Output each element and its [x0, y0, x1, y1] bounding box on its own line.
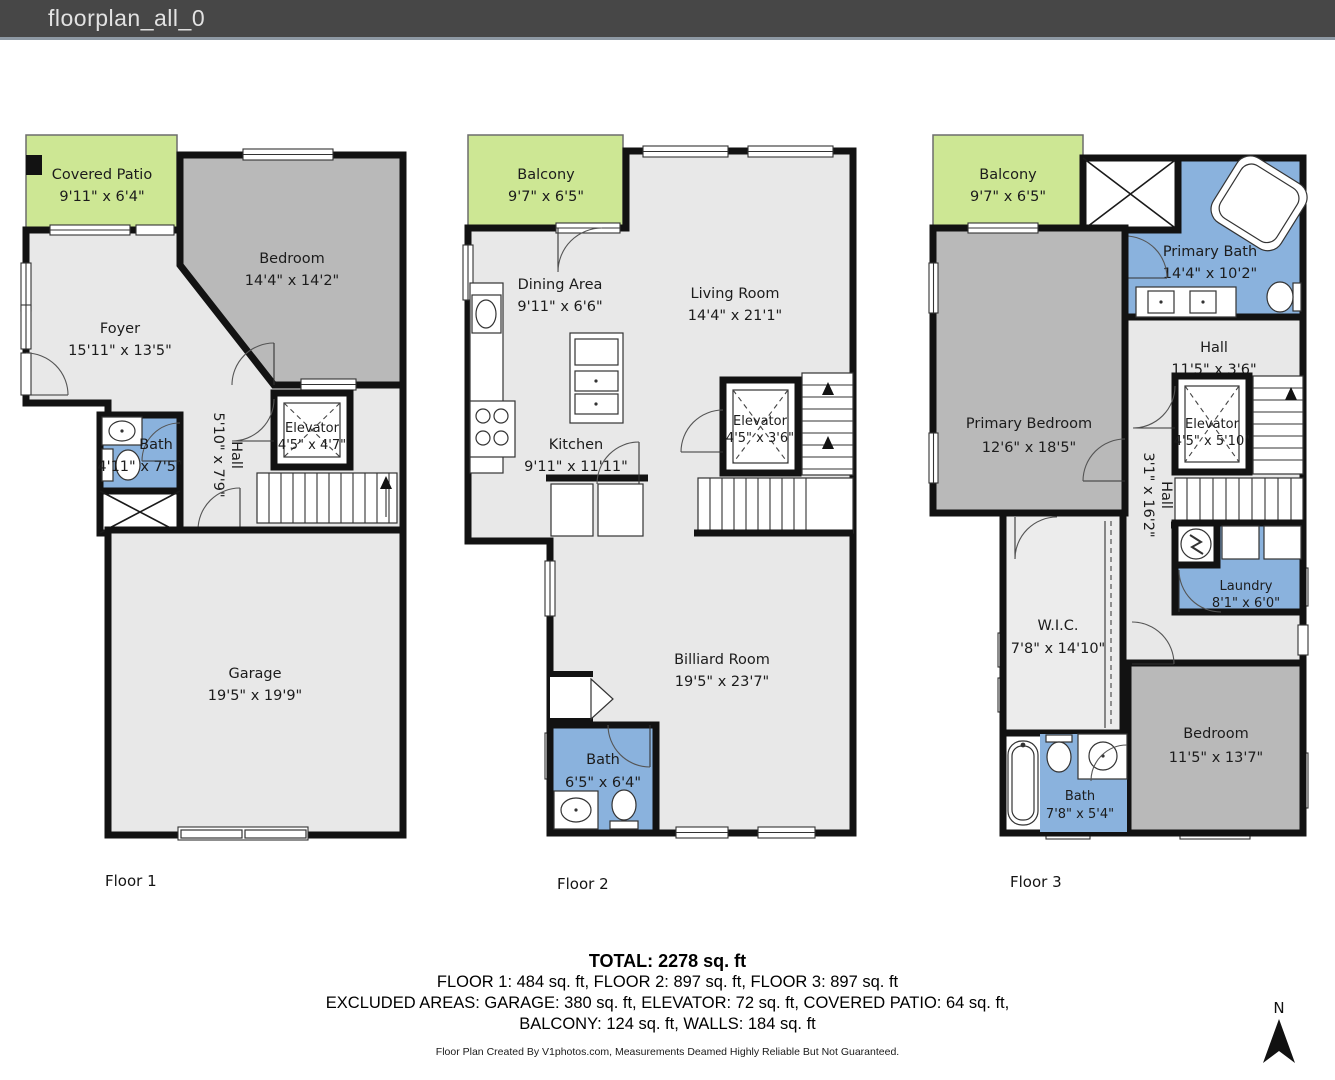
room-wic-label: W.I.C.	[1038, 618, 1079, 634]
room-primary-bedroom: Primary Bedroom 12'6" x 18'5"	[933, 228, 1125, 513]
room-bedroom-3-dims: 11'5" x 13'7"	[1169, 750, 1263, 766]
room-hall-1-label: Hall	[228, 441, 244, 469]
room-laundry-label: Laundry	[1220, 579, 1273, 594]
north-arrow-icon	[1263, 1019, 1295, 1063]
bath-2-toilet	[612, 790, 636, 820]
floor-3-plan-container: Balcony 9'7" x 6'5" Primary Bath 14'4" x…	[928, 133, 1313, 852]
room-primary-bedroom-dims: 12'6" x 18'5"	[982, 440, 1076, 456]
room-bath-3: Bath 7'8" x 5'4"	[1003, 733, 1128, 833]
room-bath-3-label: Bath	[1065, 789, 1095, 804]
credit-line: Floor Plan Created By V1photos.com, Meas…	[0, 1045, 1335, 1059]
summary-total: TOTAL: 2278 sq. ft	[0, 950, 1335, 972]
elevator-1-dims: 4'5" x 4'7"	[278, 438, 346, 453]
compass-label: N	[1261, 999, 1297, 1017]
room-bedroom-3-label: Bedroom	[1183, 726, 1249, 742]
patio-wall-stub	[26, 155, 42, 175]
elevator-2-label: Elevator	[733, 414, 788, 429]
room-hall-vertical-label: Hall	[1158, 481, 1174, 509]
room-kitchen-label: Kitchen	[549, 437, 604, 453]
room-bath-1-label: Bath	[139, 437, 173, 453]
compass-north: N	[1261, 999, 1297, 1067]
room-balcony-3: Balcony 9'7" x 6'5"	[933, 135, 1083, 228]
room-balcony-3-dims: 9'7" x 6'5"	[970, 189, 1046, 205]
floorplan-page: floorplan_all_0 Covered Patio 9'11" x 6'…	[0, 0, 1335, 1080]
summary-excluded-2: BALCONY: 124 sq. ft, WALLS: 184 sq. ft	[0, 1014, 1335, 1035]
room-balcony-2: Balcony 9'7" x 6'5"	[468, 135, 623, 228]
room-primary-bath-dims: 14'4" x 10'2"	[1163, 266, 1257, 282]
room-bath-2-label: Bath	[586, 752, 620, 768]
room-primary-bath-label: Primary Bath	[1163, 244, 1257, 260]
room-hall-1-dims: 5'10" x 7'9"	[210, 412, 226, 497]
room-wic-dims: 7'8" x 14'10"	[1011, 641, 1105, 657]
floor-3-caption: Floor 3	[1010, 873, 1062, 891]
room-kitchen-dims: 9'11" x 11'11"	[524, 459, 628, 475]
area-summary: TOTAL: 2278 sq. ft FLOOR 1: 484 sq. ft, …	[0, 950, 1335, 1059]
room-covered-patio-label: Covered Patio	[52, 167, 153, 183]
room-balcony-2-dims: 9'7" x 6'5"	[508, 189, 584, 205]
garage-door-panel	[245, 830, 306, 838]
bath-3-toilet	[1047, 742, 1071, 772]
room-billiard-dims: 19'5" x 23'7"	[675, 674, 769, 690]
stairs-1	[257, 473, 397, 523]
room-bedroom-1-dims: 14'4" x 14'2"	[245, 273, 339, 289]
floor-3-plan: Balcony 9'7" x 6'5" Primary Bath 14'4" x…	[928, 133, 1313, 848]
room-covered-patio-dims: 9'11" x 6'4"	[59, 189, 144, 205]
room-foyer-dims: 15'11" x 13'5"	[68, 343, 172, 359]
summary-excluded-1: EXCLUDED AREAS: GARAGE: 380 sq. ft, ELEV…	[0, 993, 1335, 1014]
room-garage: Garage 19'5" x 19'9"	[108, 530, 403, 840]
room-dining-label: Dining Area	[518, 277, 603, 293]
floor-2-plan-container: Balcony 9'7" x 6'5"	[458, 133, 863, 852]
room-dining-dims: 9'11" x 6'6"	[517, 299, 602, 315]
room-garage-label: Garage	[228, 666, 281, 682]
floor-2-caption: Floor 2	[557, 875, 609, 893]
room-billiard-label: Billiard Room	[674, 652, 770, 668]
room-bath-2: Bath 6'5" x 6'4"	[550, 725, 656, 833]
room-bath-1-dims: 4'11" x 7'5"	[97, 459, 182, 475]
garage-door-panel	[181, 830, 242, 838]
elevator-3-dims: 4'5" x 5'10"	[1174, 434, 1250, 449]
floor-1-caption: Floor 1	[105, 872, 157, 890]
room-bath-2-dims: 6'5" x 6'4"	[565, 775, 641, 791]
title-bar: floorplan_all_0	[0, 0, 1335, 40]
room-wic: W.I.C. 7'8" x 14'10"	[1003, 513, 1123, 733]
summary-floors: FLOOR 1: 484 sq. ft, FLOOR 2: 897 sq. ft…	[0, 972, 1335, 993]
stove	[470, 401, 515, 457]
room-living-label: Living Room	[690, 286, 779, 302]
page-title: floorplan_all_0	[48, 5, 205, 32]
washer	[1222, 526, 1259, 559]
dryer	[1264, 526, 1301, 559]
primary-bath-toilet	[1267, 282, 1293, 312]
bath-3-toilet-tank	[1046, 735, 1072, 742]
floor-2-plan: Balcony 9'7" x 6'5"	[458, 133, 863, 848]
room-garage-dims: 19'5" x 19'9"	[208, 688, 302, 704]
room-bath-1: Bath 4'11" x 7'5"	[97, 415, 182, 491]
room-balcony-2-label: Balcony	[517, 167, 575, 183]
room-laundry-dims: 8'1" x 6'0"	[1212, 596, 1280, 611]
elevator-1-label: Elevator	[285, 421, 340, 436]
room-bedroom-1-label: Bedroom	[259, 251, 325, 267]
floor-1-plan-container: Covered Patio 9'11" x 6'4" Bedroom 14'4"…	[18, 133, 413, 852]
elevator-3-label: Elevator	[1185, 417, 1240, 432]
shower-closet	[1083, 158, 1178, 230]
room-living-dims: 14'4" x 21'1"	[688, 308, 782, 324]
elevator-2-dims: 4'5" x 3'6"	[726, 431, 794, 446]
room-covered-patio: Covered Patio 9'11" x 6'4"	[26, 135, 177, 230]
room-bath-3-dims: 7'8" x 5'4"	[1046, 807, 1114, 822]
room-foyer-label: Foyer	[100, 321, 140, 337]
electrical-panel	[1175, 523, 1217, 565]
floor-1-plan: Covered Patio 9'11" x 6'4" Bedroom 14'4"…	[18, 133, 413, 848]
room-hall-upper-label: Hall	[1200, 340, 1228, 356]
room-hall-vertical-dims: 3'1" x 16'2"	[1140, 452, 1156, 537]
room-primary-bedroom-label: Primary Bedroom	[966, 416, 1092, 432]
primary-bath-toilet-tank	[1293, 283, 1301, 311]
room-balcony-3-label: Balcony	[979, 167, 1037, 183]
bath-2-toilet-tank	[610, 821, 638, 829]
